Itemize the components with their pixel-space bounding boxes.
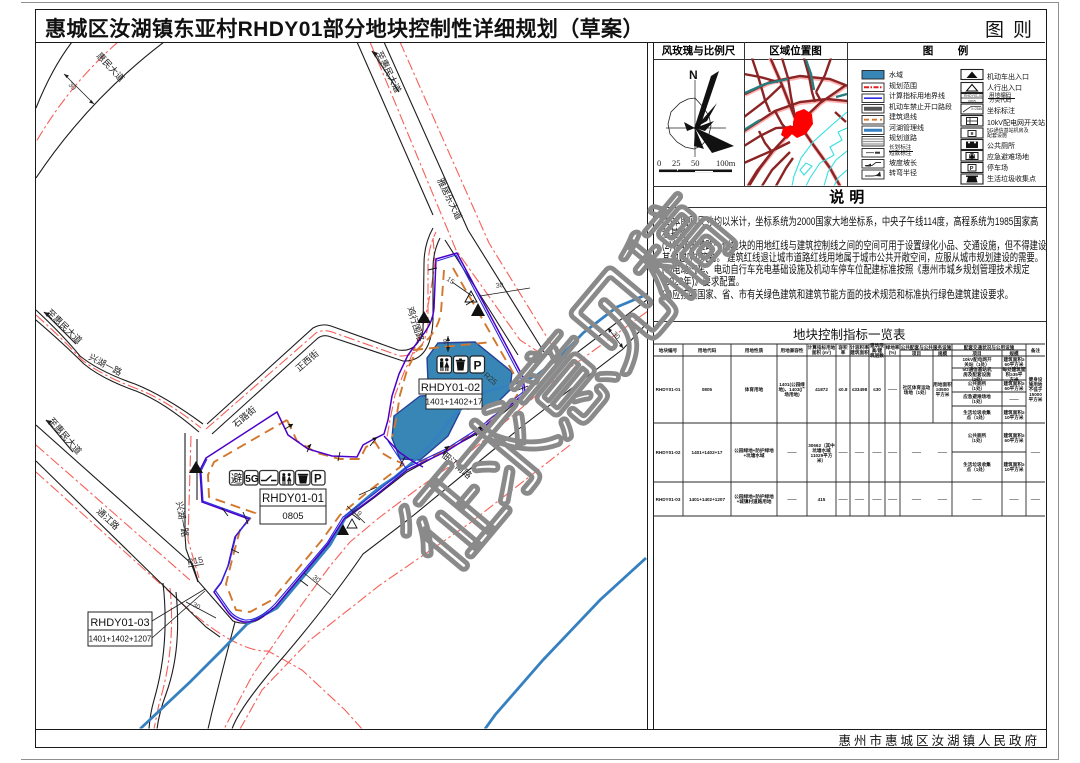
svg-text:征求意见稿: 征求意见稿 — [374, 177, 749, 592]
